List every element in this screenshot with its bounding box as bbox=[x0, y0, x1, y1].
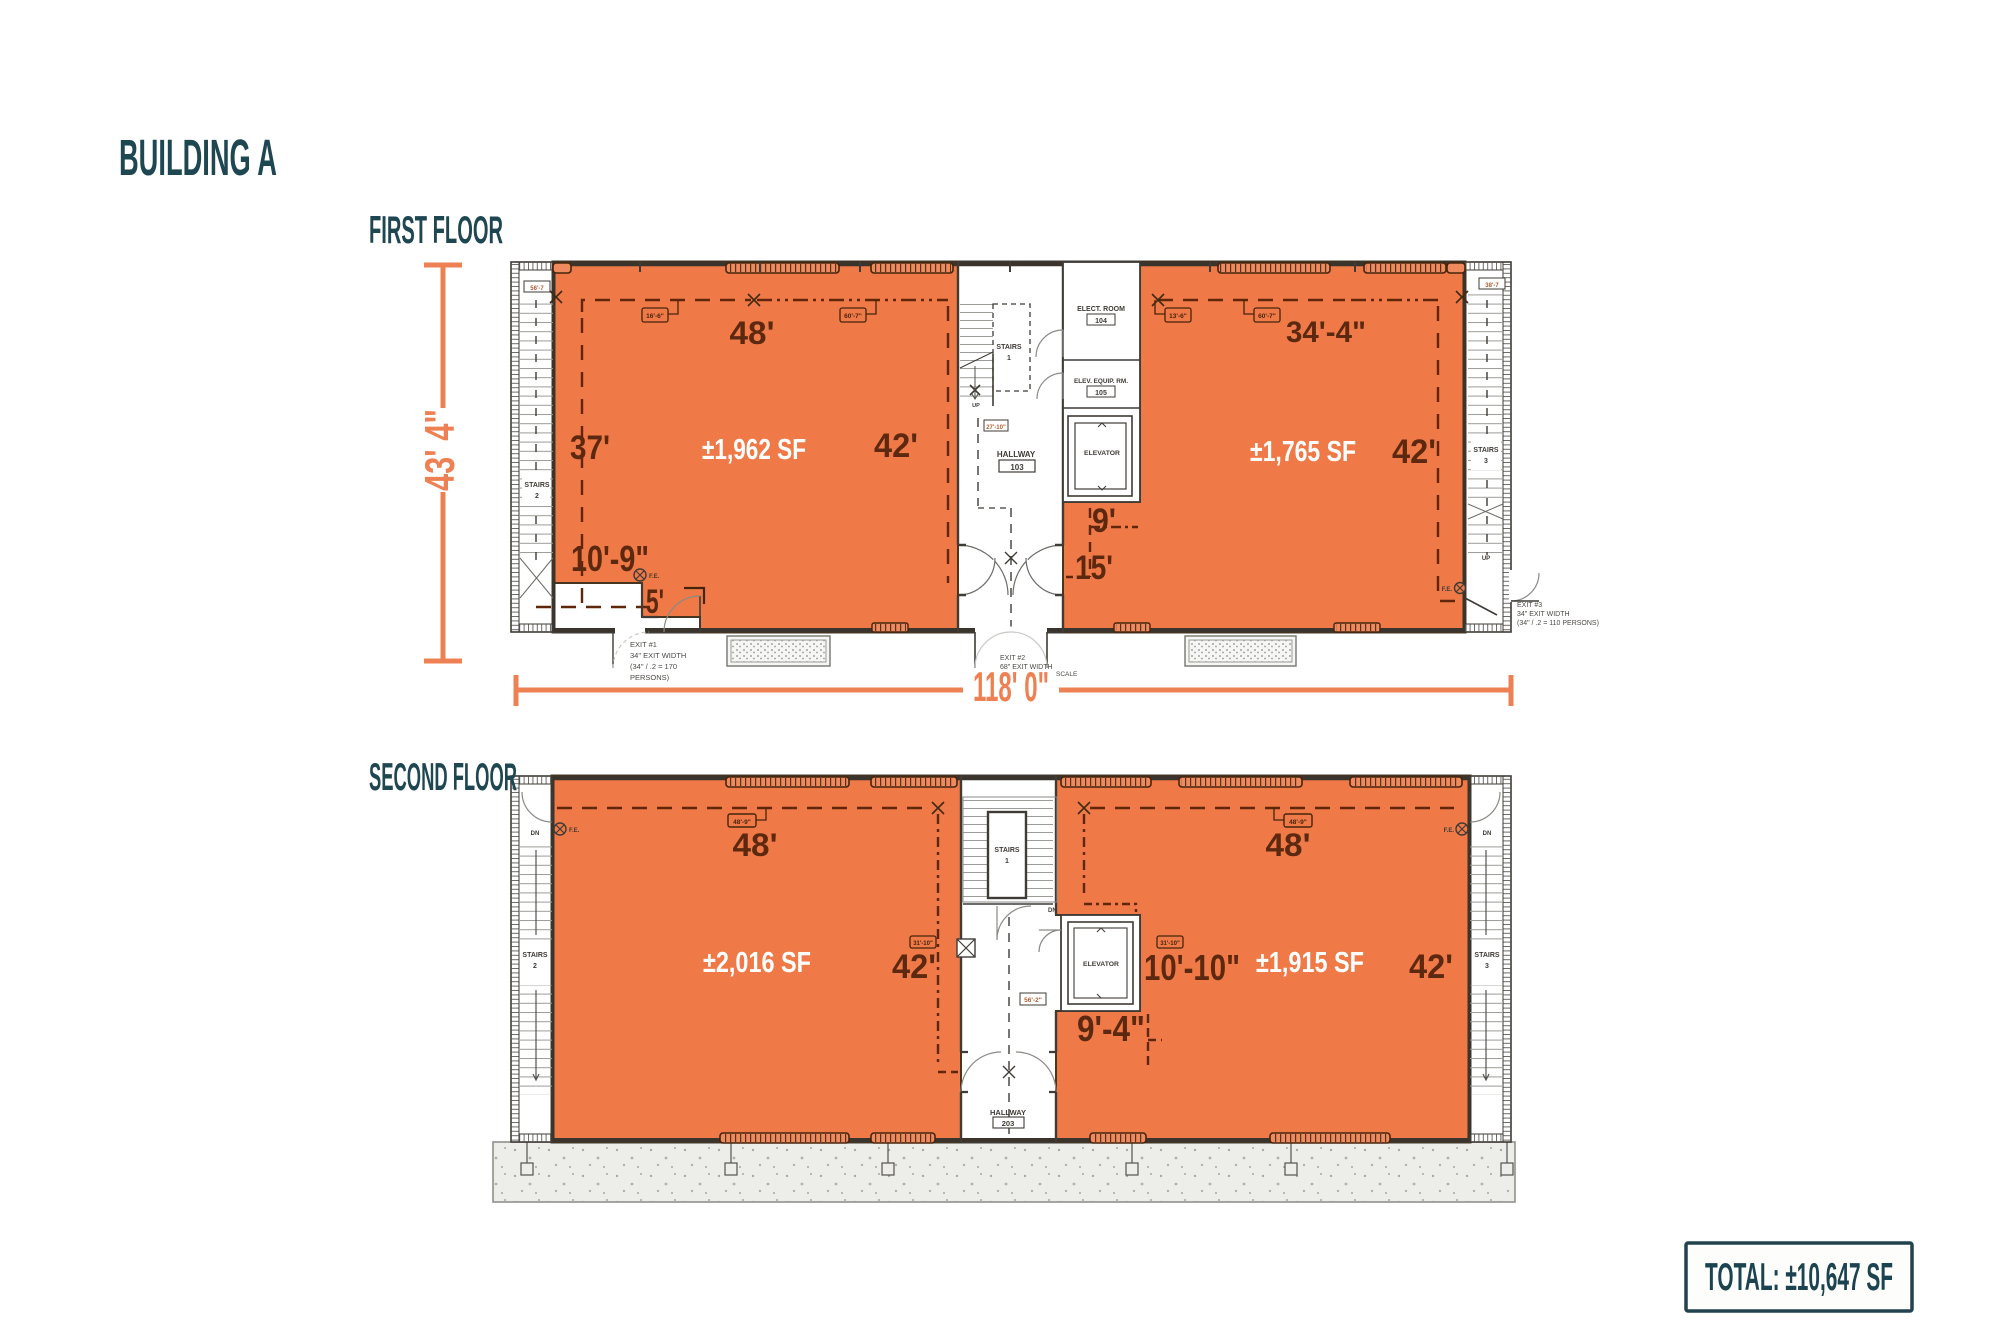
svg-text:37': 37' bbox=[570, 429, 610, 467]
svg-text:F.E.: F.E. bbox=[1442, 587, 1453, 593]
svg-text:UP: UP bbox=[972, 403, 980, 409]
svg-text:42': 42' bbox=[1392, 433, 1436, 471]
svg-text:TOTAL: ±10,647 SF: TOTAL: ±10,647 SF bbox=[1705, 1256, 1893, 1299]
svg-text:60'-7": 60'-7" bbox=[1258, 313, 1276, 320]
svg-text:HALLWAY: HALLWAY bbox=[990, 1108, 1026, 1117]
svg-text:ELEVATOR: ELEVATOR bbox=[1083, 961, 1119, 968]
svg-text:DN: DN bbox=[1483, 831, 1492, 837]
svg-text:EXIT #1: EXIT #1 bbox=[630, 640, 657, 649]
svg-text:105: 105 bbox=[1095, 390, 1107, 397]
svg-text:34" EXIT WIDTH: 34" EXIT WIDTH bbox=[1517, 611, 1570, 618]
svg-text:ELEV. EQUIP. RM.: ELEV. EQUIP. RM. bbox=[1074, 378, 1128, 385]
svg-text:43' 4": 43' 4" bbox=[416, 409, 463, 491]
svg-text:F.E.: F.E. bbox=[1444, 828, 1455, 834]
svg-text:±1,962 SF: ±1,962 SF bbox=[702, 434, 806, 466]
svg-text:3: 3 bbox=[1484, 458, 1488, 465]
svg-text:48': 48' bbox=[1266, 827, 1311, 863]
svg-text:STAIRS: STAIRS bbox=[994, 847, 1019, 854]
svg-text:HALLWAY: HALLWAY bbox=[997, 450, 1036, 459]
svg-text:2: 2 bbox=[533, 963, 537, 970]
svg-text:ELEVATOR: ELEVATOR bbox=[1084, 450, 1120, 457]
svg-text:5': 5' bbox=[646, 583, 664, 621]
svg-text:42': 42' bbox=[1409, 948, 1453, 986]
svg-text:9': 9' bbox=[1092, 502, 1116, 540]
svg-text:3: 3 bbox=[1485, 963, 1489, 970]
svg-text:42': 42' bbox=[892, 948, 936, 986]
svg-text:48': 48' bbox=[733, 827, 778, 863]
svg-text:F.E.: F.E. bbox=[569, 828, 580, 834]
svg-text:9'-4": 9'-4" bbox=[1077, 1008, 1145, 1049]
svg-text:SCALE: SCALE bbox=[1056, 671, 1078, 678]
svg-text:27'-10": 27'-10" bbox=[986, 425, 1006, 431]
svg-text:38'-7: 38'-7 bbox=[1485, 283, 1499, 289]
svg-text:STAIRS: STAIRS bbox=[522, 952, 547, 959]
svg-text:PERSONS): PERSONS) bbox=[630, 673, 670, 682]
svg-text:13'-6": 13'-6" bbox=[1169, 313, 1187, 320]
svg-text:SECOND FLOOR: SECOND FLOOR bbox=[369, 756, 517, 799]
svg-text:10'-10": 10'-10" bbox=[1144, 947, 1240, 988]
svg-text:(34" / .2 = 110 PERSONS): (34" / .2 = 110 PERSONS) bbox=[1517, 620, 1599, 627]
svg-text:(34" / .2 = 170: (34" / .2 = 170 bbox=[630, 662, 677, 671]
svg-text:FIRST FLOOR: FIRST FLOOR bbox=[369, 209, 503, 252]
svg-text:15': 15' bbox=[1075, 549, 1113, 587]
svg-text:DN: DN bbox=[1048, 908, 1057, 914]
svg-text:48'-9": 48'-9" bbox=[733, 819, 751, 826]
svg-text:48'-9": 48'-9" bbox=[1289, 819, 1307, 826]
svg-text:STAIRS: STAIRS bbox=[524, 482, 549, 489]
svg-text:EXIT #3: EXIT #3 bbox=[1517, 602, 1542, 609]
svg-text:STAIRS: STAIRS bbox=[1473, 447, 1498, 454]
svg-text:118' 0": 118' 0" bbox=[973, 663, 1049, 710]
svg-text:ELECT. ROOM: ELECT. ROOM bbox=[1077, 306, 1125, 313]
svg-text:48': 48' bbox=[730, 315, 775, 351]
svg-text:DN: DN bbox=[531, 831, 540, 837]
svg-text:16'-6": 16'-6" bbox=[646, 313, 664, 320]
svg-text:F.E.: F.E. bbox=[649, 574, 660, 580]
svg-text:56'-2": 56'-2" bbox=[1024, 997, 1042, 1004]
svg-text:42': 42' bbox=[874, 427, 918, 465]
svg-text:STAIRS: STAIRS bbox=[996, 344, 1021, 351]
svg-text:UP: UP bbox=[1482, 556, 1490, 562]
svg-text:31'-10": 31'-10" bbox=[913, 941, 933, 947]
svg-text:34" EXIT WIDTH: 34" EXIT WIDTH bbox=[630, 651, 686, 660]
svg-text:2: 2 bbox=[535, 493, 539, 500]
svg-text:60'-7": 60'-7" bbox=[844, 313, 862, 320]
svg-text:103: 103 bbox=[1010, 463, 1024, 472]
svg-text:1: 1 bbox=[1007, 355, 1011, 362]
svg-text:10'-9": 10'-9" bbox=[571, 538, 649, 579]
svg-text:56'-7: 56'-7 bbox=[530, 286, 544, 292]
svg-text:203: 203 bbox=[1002, 1119, 1015, 1128]
svg-text:34'-4": 34'-4" bbox=[1286, 316, 1366, 349]
svg-text:EXIT #2: EXIT #2 bbox=[1000, 655, 1025, 662]
svg-text:BUILDING A: BUILDING A bbox=[119, 129, 277, 186]
svg-text:STAIRS: STAIRS bbox=[1474, 952, 1499, 959]
svg-text:±1,915 SF: ±1,915 SF bbox=[1256, 947, 1364, 979]
svg-text:1: 1 bbox=[1005, 858, 1009, 865]
svg-text:104: 104 bbox=[1095, 318, 1107, 325]
svg-text:±2,016 SF: ±2,016 SF bbox=[703, 947, 811, 979]
svg-text:±1,765 SF: ±1,765 SF bbox=[1250, 436, 1356, 468]
